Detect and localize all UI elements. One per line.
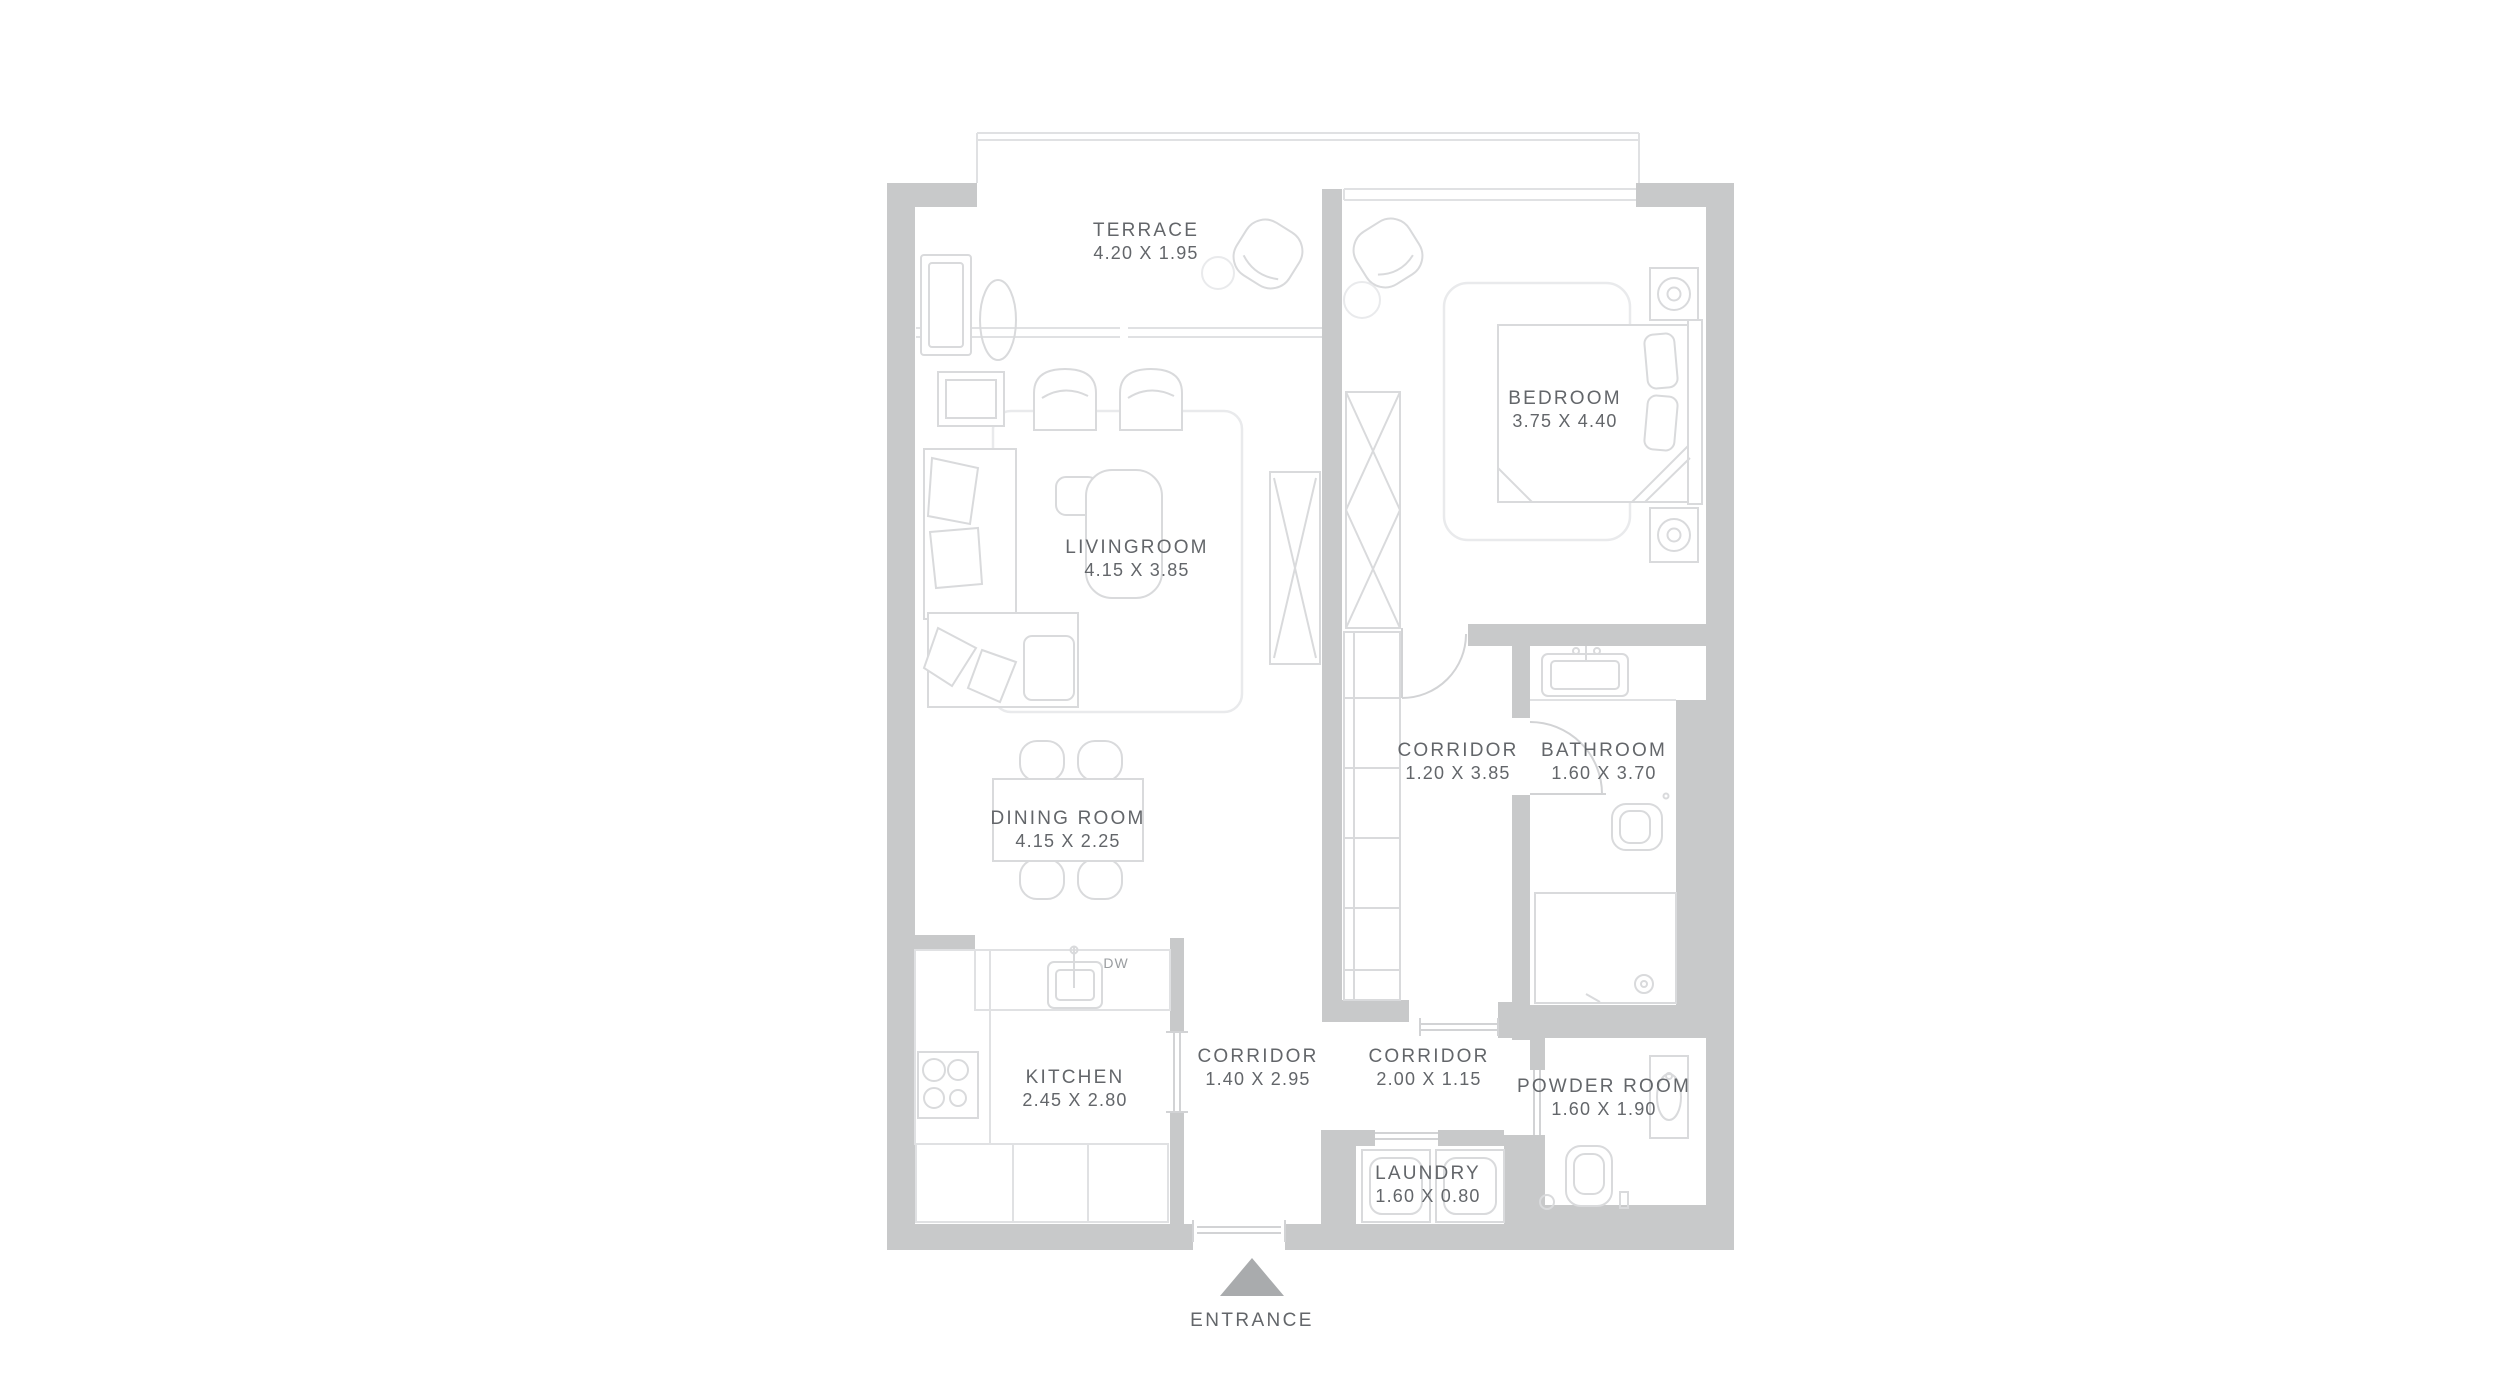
room-label-powder-name: POWDER ROOM bbox=[1517, 1076, 1691, 1097]
wall-corridor-jamb bbox=[1498, 1002, 1512, 1038]
room-label-bedroom-dims: 3.75 X 4.40 bbox=[1512, 411, 1617, 431]
wall-laundry-top-right bbox=[1438, 1130, 1504, 1146]
room-label-laundry-dims: 1.60 X 0.80 bbox=[1375, 1186, 1480, 1206]
floorplan-page: DW bbox=[0, 0, 2500, 1400]
wall-bathroom-duct bbox=[1676, 700, 1706, 1005]
bedroom-wardrobe bbox=[1346, 392, 1400, 628]
wall-corridor-cap bbox=[1322, 1000, 1409, 1022]
wall-powder-left-upper bbox=[1530, 1020, 1545, 1070]
wall-outer-right bbox=[1706, 183, 1734, 1250]
room-label-bedroom-name: BEDROOM bbox=[1508, 388, 1622, 409]
wall-bathroom-left-lower bbox=[1512, 795, 1530, 1040]
room-label-corridor-bedroom-dims: 1.20 X 3.85 bbox=[1405, 763, 1510, 783]
bathroom-sink bbox=[1542, 646, 1628, 696]
room-label-corridor-entry-name: CORRIDOR bbox=[1368, 1046, 1489, 1067]
room-label-kitchen-dims: 2.45 X 2.80 bbox=[1022, 1090, 1127, 1110]
powder-sink bbox=[1650, 1056, 1688, 1138]
dining-chair bbox=[1020, 741, 1064, 781]
room-label-dining-dims: 4.15 X 2.25 bbox=[1015, 831, 1120, 851]
wall-outer-left bbox=[887, 183, 915, 1250]
room-label-livingroom-dims: 4.15 X 3.85 bbox=[1084, 560, 1189, 580]
room-label-laundry-name: LAUNDRY bbox=[1375, 1163, 1481, 1184]
wall-kitchen-right-lower bbox=[1170, 1112, 1184, 1224]
tv-cabinet bbox=[1270, 472, 1320, 664]
room-label-corridor-main-name: CORRIDOR bbox=[1197, 1046, 1318, 1067]
wall-living-bedroom-divider bbox=[1322, 189, 1342, 1022]
room-label-powder-dims: 1.60 X 1.90 bbox=[1551, 1099, 1656, 1119]
room-label-corridor-bedroom-name: CORRIDOR bbox=[1397, 740, 1518, 761]
room-label-terrace-dims: 4.20 X 1.95 bbox=[1093, 243, 1198, 263]
entrance-arrow-icon bbox=[1220, 1258, 1284, 1296]
wall-bottom-left bbox=[887, 1224, 1193, 1250]
bedroom-stool bbox=[1344, 282, 1380, 318]
entrance-label: ENTRANCE bbox=[1190, 1310, 1314, 1331]
room-label-corridor-entry-dims: 2.00 X 1.15 bbox=[1376, 1069, 1481, 1089]
room-label-bathroom-name: BATHROOM bbox=[1541, 740, 1667, 761]
dishwasher-label: DW bbox=[1103, 955, 1128, 971]
room-label-kitchen-name: KITCHEN bbox=[1026, 1067, 1125, 1088]
floorplan-drawing: DW bbox=[0, 0, 2500, 1400]
wall-bathroom-top bbox=[1512, 624, 1706, 646]
dining-chair bbox=[1020, 859, 1064, 899]
wall-cap-top-left bbox=[887, 183, 977, 207]
wall-bathroom-left-upper bbox=[1512, 646, 1530, 718]
room-label-terrace-name: TERRACE bbox=[1093, 220, 1199, 241]
corridor-closet bbox=[1344, 632, 1400, 1000]
room-label-livingroom-name: LIVINGROOM bbox=[1065, 537, 1208, 558]
wall-powder-bottom bbox=[1512, 1205, 1706, 1250]
wall-kitchen-right-upper bbox=[1170, 938, 1184, 1032]
dining-chair bbox=[1078, 859, 1122, 899]
terrace-side-table bbox=[1202, 257, 1234, 289]
room-label-dining-name: DINING ROOM bbox=[990, 808, 1145, 829]
armchair bbox=[1120, 369, 1182, 430]
nightstand bbox=[1650, 508, 1698, 562]
wall-kitchen-top-stub bbox=[915, 935, 975, 950]
headboard bbox=[1688, 320, 1702, 504]
stove-icon bbox=[918, 1052, 978, 1118]
entrance-marker: ENTRANCE bbox=[1190, 1258, 1314, 1331]
wall-laundry-top-left bbox=[1356, 1130, 1375, 1146]
nightstand bbox=[1650, 268, 1698, 320]
room-label-bathroom-dims: 1.60 X 3.70 bbox=[1551, 763, 1656, 783]
room-label-corridor-main-dims: 1.40 X 2.95 bbox=[1205, 1069, 1310, 1089]
armchair bbox=[1034, 369, 1096, 430]
dining-chair bbox=[1078, 741, 1122, 781]
wall-laundry-left bbox=[1321, 1130, 1356, 1250]
wall-bedroom-door-stub bbox=[1468, 624, 1512, 646]
